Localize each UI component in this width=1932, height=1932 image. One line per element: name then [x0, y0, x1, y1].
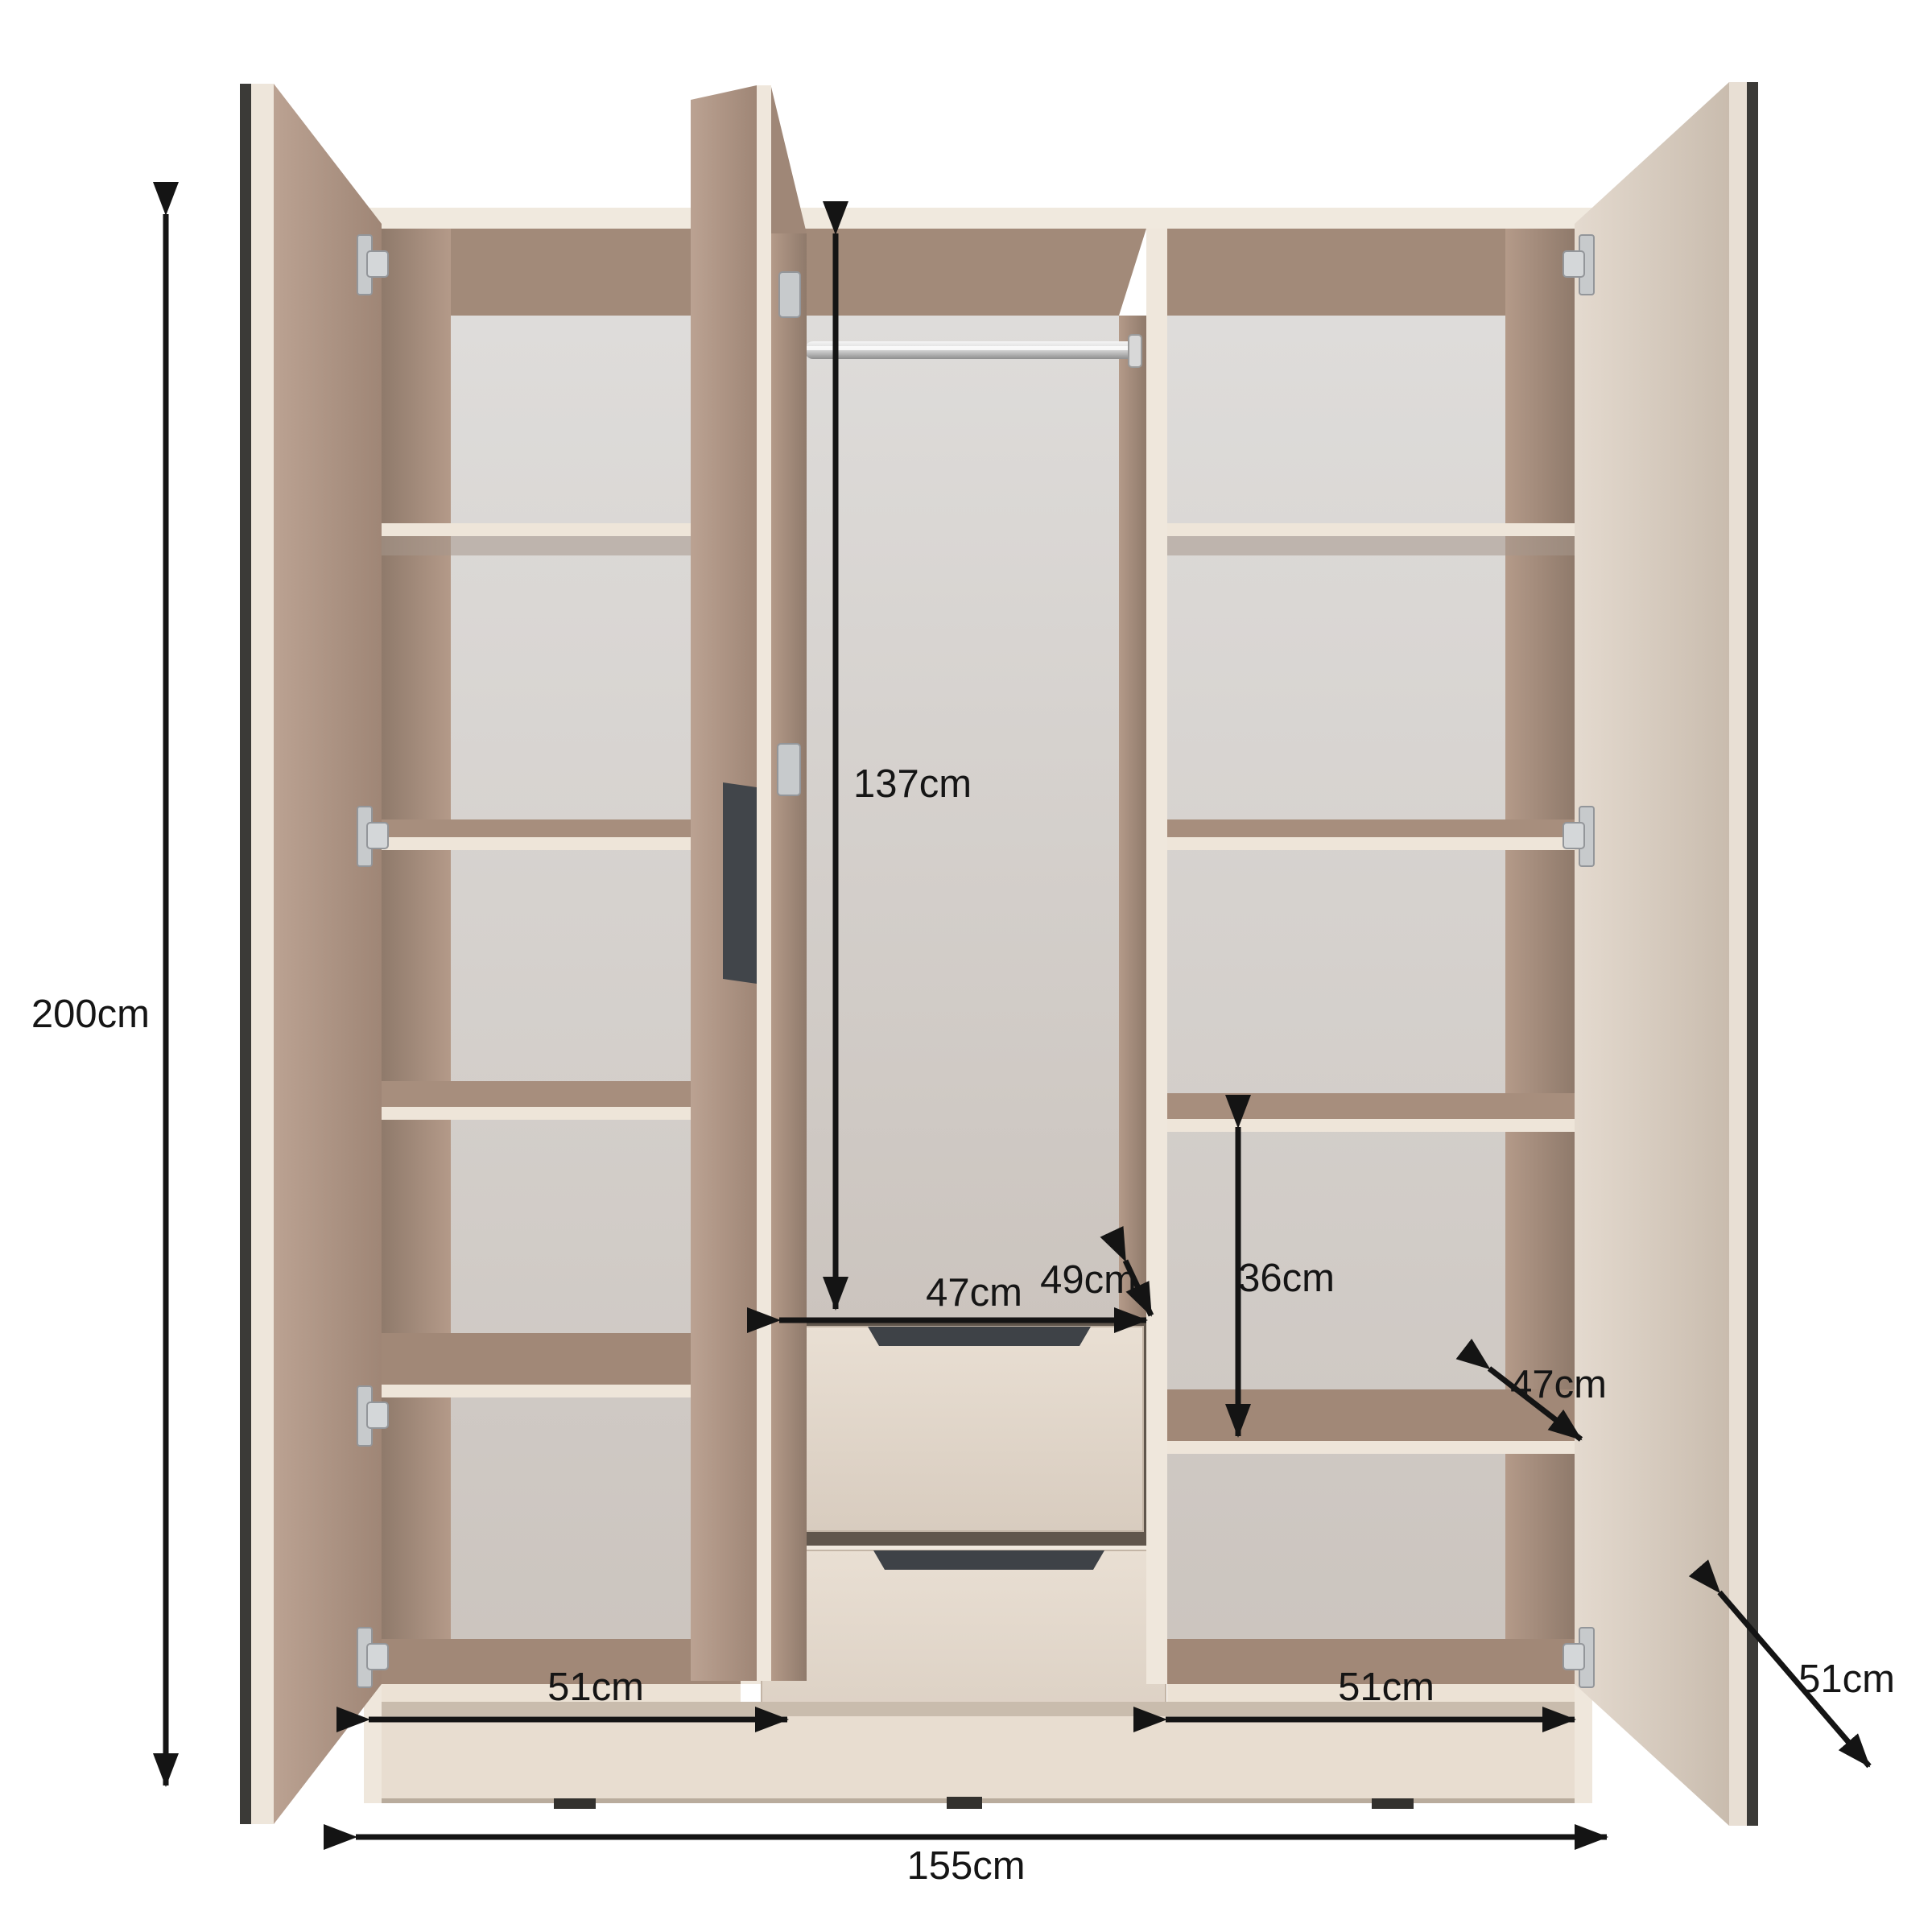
right-inner-wall: [1505, 229, 1575, 1684]
right-door-edge-band: [1747, 82, 1758, 1826]
right-partition: [1146, 229, 1167, 1684]
left-inner-wall: [382, 229, 451, 1684]
left-shelf-3: [382, 1081, 741, 1120]
drawer-bottom-handle: [873, 1550, 1104, 1570]
right-shelf-1: [1167, 523, 1575, 555]
left-compartment: [382, 229, 741, 1702]
rail-bracket: [1129, 335, 1141, 367]
wardrobe-diagram: 200cm 137cm 47cm 49cm 36cm 47cm 51cm 51c…: [0, 0, 1932, 1932]
middle-ceiling: [765, 229, 1146, 316]
total-width-label: 155cm: [906, 1844, 1025, 1888]
left-shelf-1: [382, 523, 741, 555]
drawer-top: [771, 1327, 1143, 1531]
hanging-depth-label: 49cm: [1040, 1258, 1137, 1302]
left-width-label: 51cm: [547, 1666, 644, 1709]
right-door-inner-face: [1575, 82, 1729, 1826]
middle-door: [691, 85, 807, 1681]
right-back-panel: [1167, 316, 1505, 1684]
shelf-gap-label: 36cm: [1238, 1257, 1335, 1300]
right-compartment: [1167, 229, 1575, 1702]
middle-door-front-edge: [757, 85, 771, 1681]
middle-compartment: [762, 229, 1166, 1782]
shelf-depth-label: 47cm: [1510, 1363, 1607, 1406]
foot-right: [1372, 1798, 1414, 1809]
middle-right-wall: [1119, 316, 1146, 1327]
side-depth-label: 51cm: [1798, 1657, 1895, 1701]
left-shelf-2: [382, 819, 741, 850]
left-door-front-edge: [251, 84, 274, 1824]
middle-back-panel: [805, 316, 1119, 1327]
middle-door-handle: [723, 782, 757, 984]
middle-door-side-wedge: [771, 233, 807, 1681]
left-door-inner-face: [274, 84, 382, 1824]
left-shelf-4: [382, 1333, 741, 1397]
total-height-label: 200cm: [31, 993, 150, 1036]
foot-left: [554, 1798, 596, 1809]
right-width-label: 51cm: [1338, 1666, 1435, 1709]
right-shelf-3: [1167, 1093, 1575, 1132]
right-door: [1563, 82, 1758, 1826]
left-door-edge-band: [240, 84, 251, 1824]
foot-center: [947, 1797, 982, 1809]
top-front-edge: [364, 208, 1592, 229]
carcass: [364, 208, 1592, 1809]
right-door-front-edge: [1729, 82, 1747, 1826]
hanging-width-label: 47cm: [926, 1271, 1022, 1315]
drawer-top-handle: [868, 1327, 1091, 1346]
hanging-height-label: 137cm: [853, 762, 972, 806]
middle-door-hinge-bottom: [778, 744, 800, 795]
left-door: [240, 84, 388, 1824]
wardrobe-illustration: 200cm 137cm 47cm 49cm 36cm 47cm 51cm 51c…: [0, 0, 1932, 1932]
middle-door-hinge-top: [779, 272, 800, 317]
right-shelf-2: [1167, 819, 1575, 850]
